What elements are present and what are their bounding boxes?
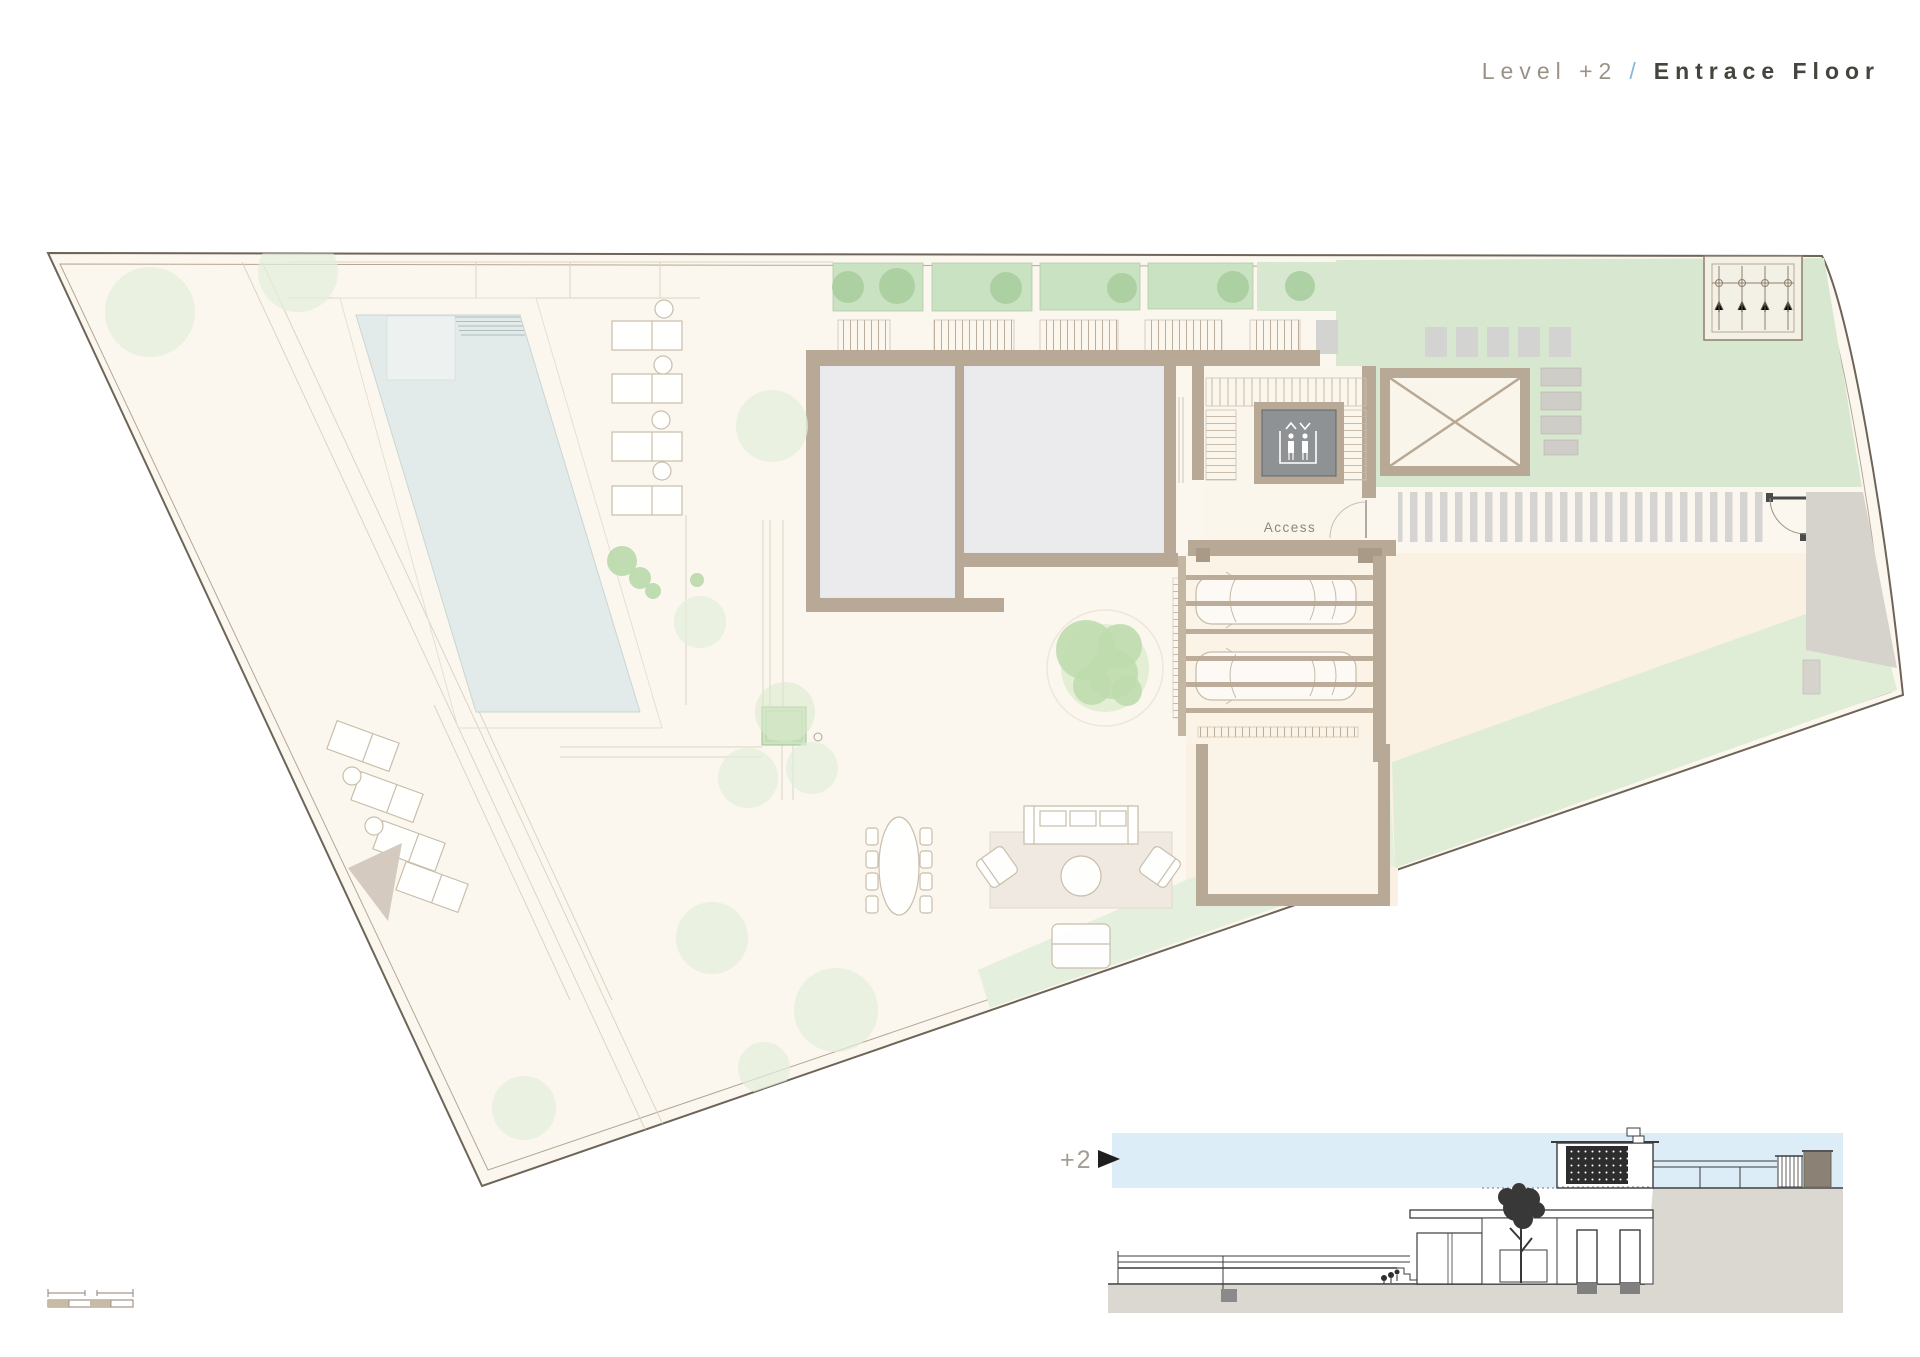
- page: Level +2/Entrace Floor: [0, 0, 1920, 1357]
- section-drawing: +2: [1060, 1128, 1843, 1313]
- access-label: Access: [1264, 520, 1317, 535]
- elevator: [1254, 402, 1344, 484]
- solar-trellis: [1704, 256, 1802, 340]
- storage-x-room: [1380, 368, 1530, 476]
- scale-bar: [48, 1289, 133, 1307]
- section-footing-2: [1620, 1283, 1640, 1294]
- section-shrubs: [1381, 1270, 1400, 1285]
- dining-table: [879, 817, 919, 915]
- sofa: [1024, 806, 1138, 844]
- courtyard-tree: [1047, 610, 1163, 726]
- floor-plan-drawing: Access: [0, 0, 1920, 1357]
- pool-shelf: [387, 316, 455, 380]
- section-level-marker: +2: [1060, 1146, 1093, 1174]
- section-footing-left: [1221, 1289, 1237, 1302]
- patio-room-floor: [1208, 744, 1378, 894]
- lounge-chair: [1052, 924, 1110, 968]
- garage-side-grille: [1173, 578, 1184, 718]
- garage-threshold-grating: [1198, 727, 1358, 737]
- planter-boxes: [832, 263, 1315, 311]
- stepping-stones: [1425, 327, 1571, 357]
- coffee-table: [1061, 856, 1101, 896]
- car-1: [1196, 572, 1356, 628]
- section-footing-1: [1577, 1283, 1597, 1294]
- upper-room-2: [964, 366, 1164, 553]
- section-wall-block: [1804, 1151, 1831, 1187]
- dining-set: [866, 817, 932, 915]
- driveway-paving: [1398, 492, 1770, 542]
- upper-room-1: [820, 366, 955, 598]
- garage: [1173, 572, 1376, 737]
